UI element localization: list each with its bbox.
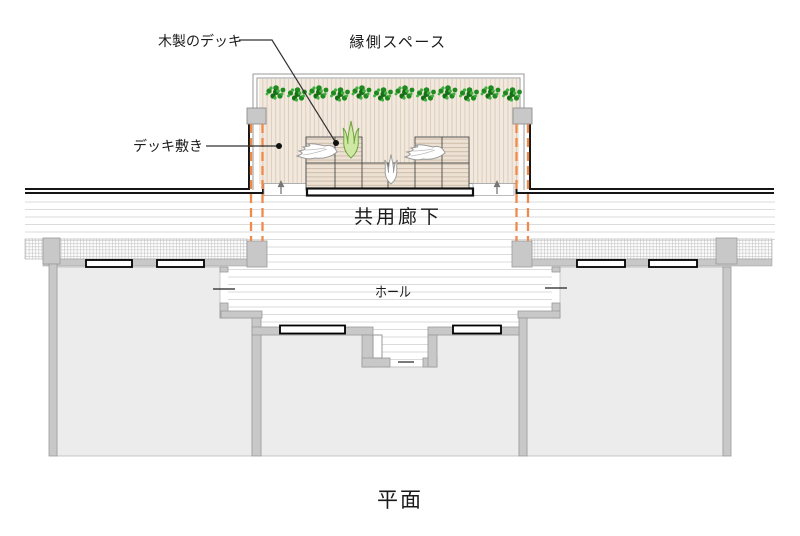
post xyxy=(247,108,266,124)
post xyxy=(513,108,532,124)
hall-step-wall xyxy=(518,311,560,318)
hall-post-right xyxy=(512,241,532,267)
door-jamb xyxy=(373,335,382,358)
window xyxy=(157,260,204,267)
window xyxy=(577,260,625,267)
deck-step-left xyxy=(264,184,307,196)
entrance-wall xyxy=(428,335,437,367)
label-deck-paving: デッキ敷き xyxy=(133,138,203,154)
room-divider-left xyxy=(252,318,261,456)
window xyxy=(649,260,697,267)
hall-wall-stub xyxy=(552,267,560,272)
label-hall: ホール xyxy=(375,284,411,300)
hall-wall-stub xyxy=(220,267,228,272)
wall-left-outer xyxy=(49,264,57,456)
label-common-corridor: 共用廊下 xyxy=(354,206,442,228)
window xyxy=(280,326,345,334)
window xyxy=(453,326,501,334)
leader-dot xyxy=(276,143,282,149)
wall-right-outer xyxy=(723,267,731,456)
leader-dot xyxy=(333,140,339,146)
deck-threshold xyxy=(307,189,473,196)
post xyxy=(43,238,60,264)
label-wooden-deck: 木製のデッキ xyxy=(158,33,242,49)
floor-plan-drawing: 木製のデッキ 縁側スペース デッキ敷き 共用廊下 ホール 平面 xyxy=(0,0,800,536)
post xyxy=(716,238,737,264)
drawing-caption: 平面 xyxy=(377,489,423,512)
hall-step-wall xyxy=(221,311,262,318)
floor-plan-canvas: 木製のデッキ 縁側スペース デッキ敷き 共用廊下 ホール 平面 xyxy=(0,0,800,536)
room-divider-right xyxy=(519,318,527,456)
hall-post-left xyxy=(247,241,267,267)
label-engawa-space: 縁側スペース xyxy=(349,34,446,51)
deck-step-right xyxy=(473,184,514,196)
window xyxy=(86,260,132,267)
entrance-wall xyxy=(362,358,390,367)
